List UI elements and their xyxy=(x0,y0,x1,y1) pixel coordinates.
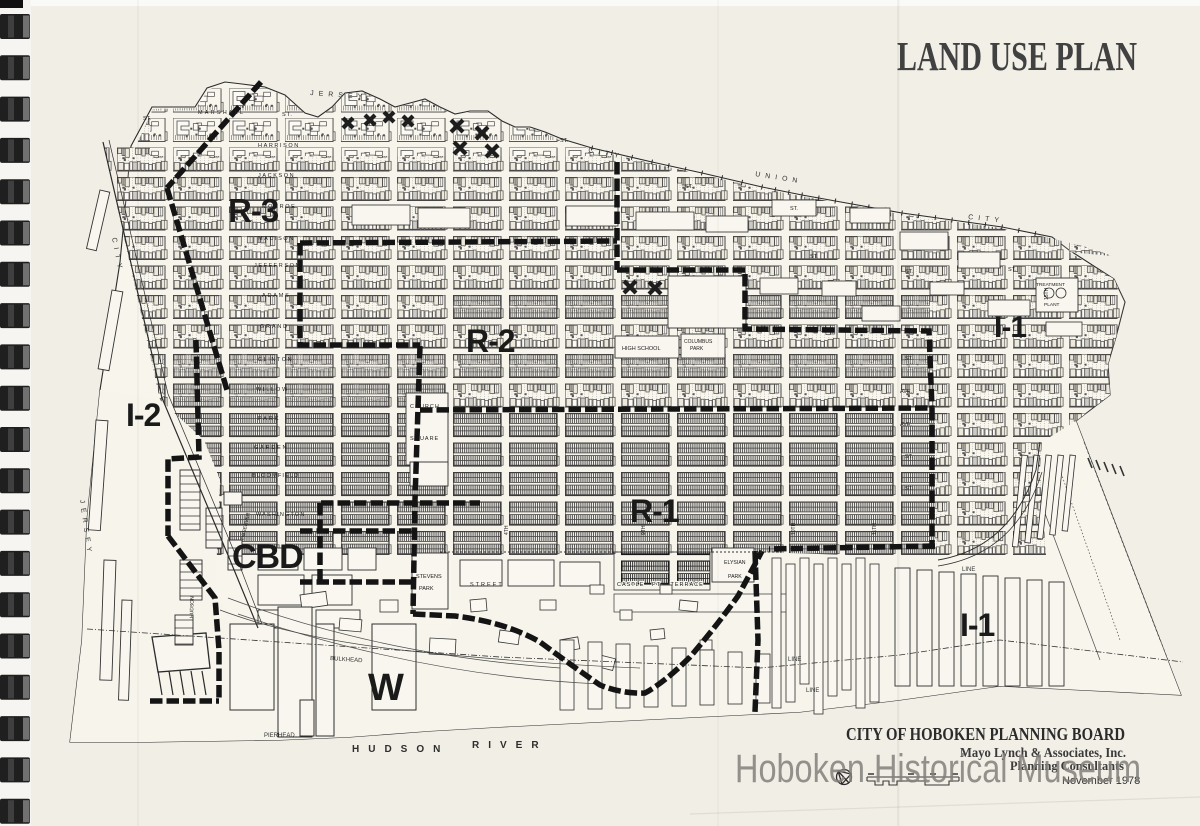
svg-text:ST.: ST. xyxy=(143,116,151,122)
svg-text:AVE.: AVE. xyxy=(900,389,913,395)
svg-text:PIERHEAD: PIERHEAD xyxy=(264,733,295,739)
svg-text:ELYSIAN: ELYSIAN xyxy=(724,560,746,566)
svg-text:BLOOMFIELD: BLOOMFIELD xyxy=(252,473,299,479)
svg-text:4TH: 4TH xyxy=(504,525,510,535)
svg-text:CLINTON: CLINTON xyxy=(258,357,293,363)
svg-text:LINE: LINE xyxy=(788,657,801,663)
svg-text:CITY OF HOBOKEN PLANNING BOARD: CITY OF HOBOKEN PLANNING BOARD xyxy=(846,724,1125,744)
svg-text:11TH: 11TH xyxy=(872,523,878,535)
svg-text:ST.: ST. xyxy=(1008,267,1016,273)
svg-text:LINE: LINE xyxy=(962,567,975,573)
svg-text:PLANT: PLANT xyxy=(1044,302,1060,308)
svg-text:CBD: CBD xyxy=(232,538,303,576)
svg-text:ST.: ST. xyxy=(685,184,693,190)
svg-text:HIGH SCHOOL: HIGH SCHOOL xyxy=(622,346,661,352)
svg-text:ST.: ST. xyxy=(810,254,818,260)
svg-text:ST.: ST. xyxy=(282,112,293,118)
svg-text:PARK: PARK xyxy=(690,346,704,352)
svg-text:I-2: I-2 xyxy=(126,397,161,433)
svg-text:UNION: UNION xyxy=(755,171,803,185)
svg-text:GARDEN: GARDEN xyxy=(254,445,288,451)
svg-text:ST.: ST. xyxy=(560,138,568,144)
svg-text:Hoboken Historical Museum: Hoboken Historical Museum xyxy=(735,747,1141,791)
svg-text:ST.: ST. xyxy=(905,356,913,362)
svg-text:I-1: I-1 xyxy=(960,607,995,643)
svg-text:STEVENS: STEVENS xyxy=(416,574,442,580)
svg-text:ST.: ST. xyxy=(905,269,913,275)
svg-text:WILLOW: WILLOW xyxy=(256,387,289,393)
svg-text:LAND USE PLAN: LAND USE PLAN xyxy=(897,33,1137,79)
svg-text:STREET: STREET xyxy=(470,582,504,588)
svg-text:ST.: ST. xyxy=(790,206,798,212)
svg-text:PARK: PARK xyxy=(258,416,281,422)
svg-text:ST.: ST. xyxy=(905,486,913,492)
svg-text:WASHINGTON: WASHINGTON xyxy=(256,512,306,518)
svg-text:JEFFERSON: JEFFERSON xyxy=(254,263,301,269)
svg-text:R-1: R-1 xyxy=(630,493,679,529)
svg-text:W: W xyxy=(368,667,404,709)
svg-text:GRAND: GRAND xyxy=(260,324,289,330)
svg-text:PARK: PARK xyxy=(419,586,434,592)
svg-text:PARK: PARK xyxy=(728,574,742,580)
svg-text:HARRISON: HARRISON xyxy=(258,143,300,149)
svg-text:15TH: 15TH xyxy=(1044,287,1050,300)
svg-text:ADAMS: ADAMS xyxy=(262,293,291,299)
svg-text:MADISON: MADISON xyxy=(258,236,295,242)
svg-text:10TH: 10TH xyxy=(791,522,797,535)
svg-text:COLUMBUS: COLUMBUS xyxy=(684,339,713,345)
svg-text:TREATMENT: TREATMENT xyxy=(1036,282,1065,288)
svg-text:HUDSON: HUDSON xyxy=(189,596,196,618)
svg-text:AVE.: AVE. xyxy=(900,422,913,428)
svg-text:LINE: LINE xyxy=(806,688,819,694)
svg-text:R-2: R-2 xyxy=(466,323,515,359)
svg-text:R-3: R-3 xyxy=(228,192,279,229)
svg-text:RIVER: RIVER xyxy=(472,740,548,751)
svg-text:ST.: ST. xyxy=(905,454,913,460)
svg-text:HUDSON: HUDSON xyxy=(352,744,449,755)
svg-text:MARSHALL: MARSHALL xyxy=(198,110,245,116)
svg-text:JACKSON: JACKSON xyxy=(258,173,295,179)
svg-text:I-1: I-1 xyxy=(994,311,1026,344)
